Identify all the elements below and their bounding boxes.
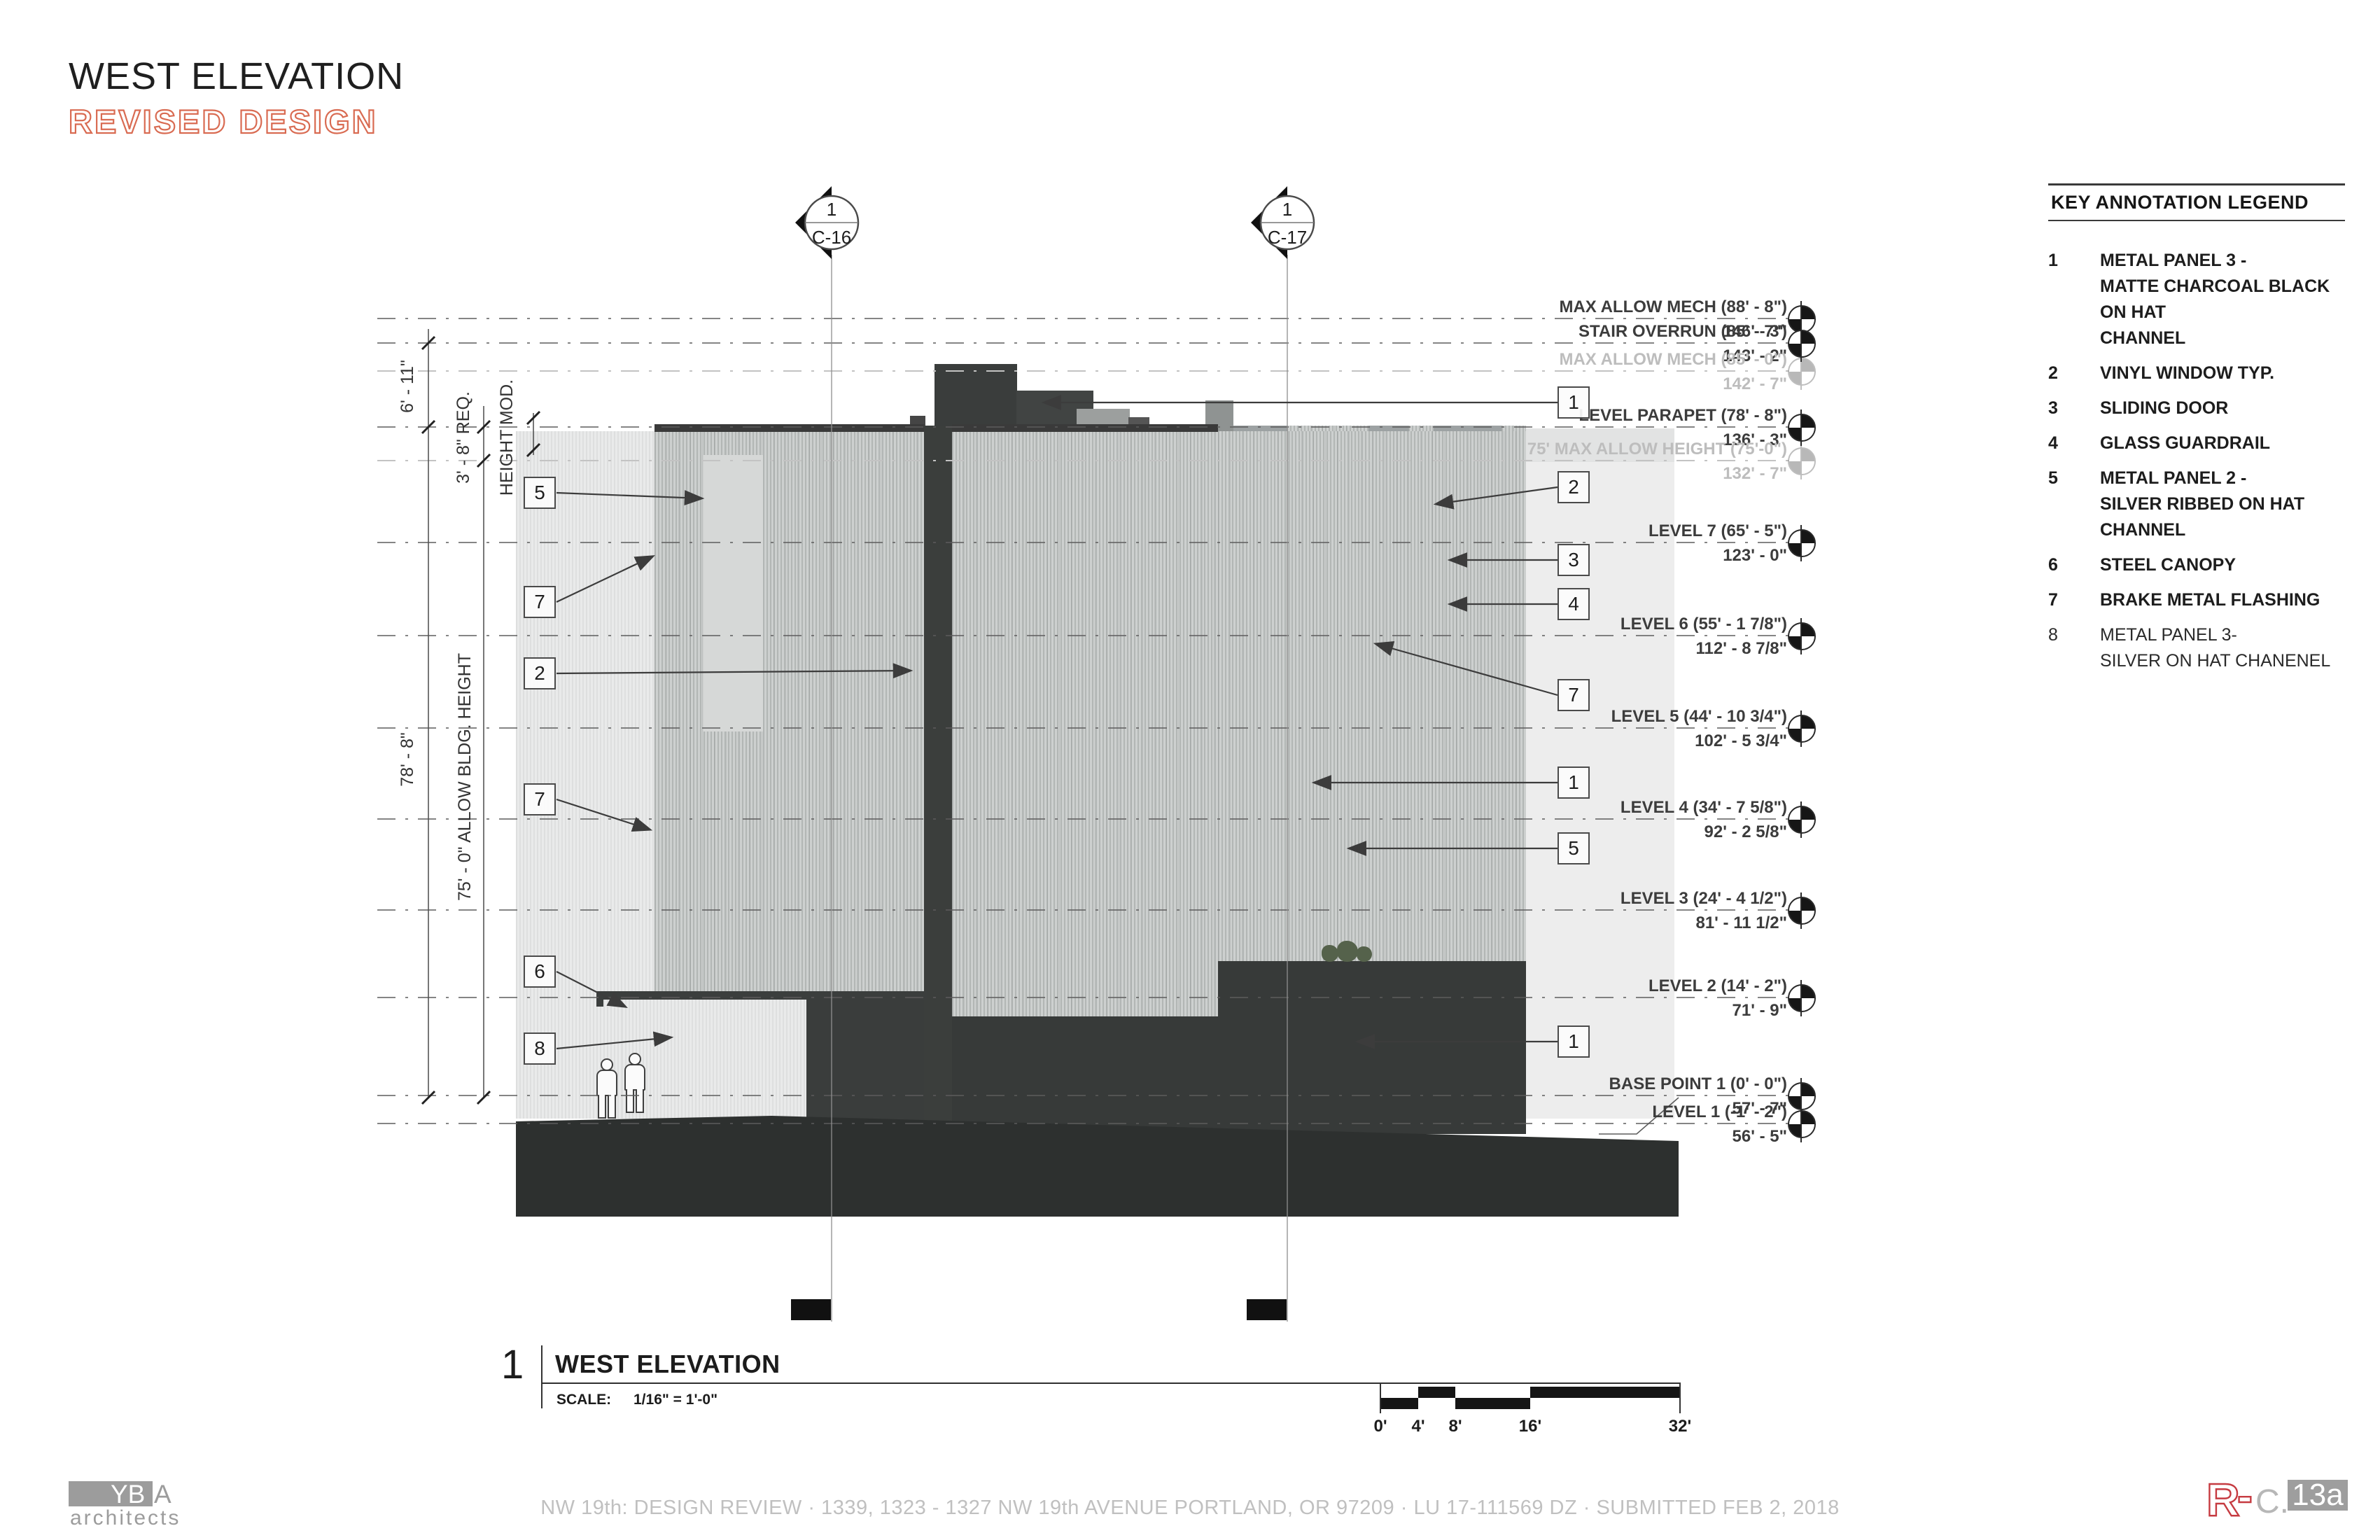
dimension-text: 78' - 8" xyxy=(397,654,418,864)
level-label: LEVEL 3 (24' - 4 1/2")81' - 11 1/2" xyxy=(1479,888,1787,934)
sheet-number: 13a xyxy=(2292,1478,2343,1513)
level-datum-crosshair xyxy=(1800,801,1802,838)
level-label-name: LEVEL 5 (44' - 10 3/4") xyxy=(1479,706,1787,727)
level-label-name: LEVEL 4 (34' - 7 5/8") xyxy=(1479,797,1787,818)
scale-bar-label: 4' xyxy=(1411,1417,1424,1436)
level-datum-crosshair xyxy=(1800,980,1802,1016)
scale-bar-segment xyxy=(1418,1387,1455,1398)
level-label-elevation: 102' - 5 3/4" xyxy=(1479,730,1787,752)
level-label-elevation: 71' - 9" xyxy=(1479,1000,1787,1021)
key-annotation-legend: KEY ANNOTATION LEGEND 1METAL PANEL 3 -MA… xyxy=(2048,183,2345,683)
level-datum-icon xyxy=(1788,806,1816,834)
level-datum-icon xyxy=(1788,447,1816,475)
level-label-name: MAX ALLOW MECH (88' - 8") xyxy=(1479,296,1787,318)
section-marker-diamond xyxy=(1251,186,1287,259)
drawing-title-rule xyxy=(541,1382,1680,1384)
steel-canopy-edge xyxy=(596,991,603,1007)
person-figure xyxy=(596,1058,617,1119)
shrub xyxy=(1322,945,1338,962)
scale-bar-segment xyxy=(1380,1398,1418,1409)
stair-shaft-strip xyxy=(924,426,952,1134)
level-label: LEVEL 7 (65' - 5")123' - 0" xyxy=(1479,520,1787,566)
section-marker-diamond xyxy=(795,186,832,259)
legend-item-text: VINYL WINDOW TYP. xyxy=(2100,360,2345,386)
scale-bar-segment xyxy=(1530,1387,1680,1398)
level-datum-icon xyxy=(1788,305,1816,333)
level-datum-crosshair xyxy=(1800,710,1802,747)
legend-item-line: METAL PANEL 3- xyxy=(2100,622,2345,648)
level-label-name: LEVEL 1 (-1' - 2") xyxy=(1479,1101,1787,1123)
callout-box: 2 xyxy=(524,657,556,689)
callout-box: 5 xyxy=(524,477,556,509)
level-datum-crosshair xyxy=(1800,409,1802,446)
legend-item-line: SILVER RIBBED ON HAT CHANNEL xyxy=(2100,491,2345,543)
callout-box: 8 xyxy=(524,1032,556,1065)
level-label: LEVEL 6 (55' - 1 7/8")112' - 8 7/8" xyxy=(1479,613,1787,659)
level-label-name: LEVEL 3 (24' - 4 1/2") xyxy=(1479,888,1787,909)
legend-item-number: 8 xyxy=(2048,622,2100,674)
callout-box: 7 xyxy=(1557,679,1590,711)
scale-value: 1/16" = 1'-0" xyxy=(633,1392,717,1408)
page-subtitle: REVISED DESIGN xyxy=(69,102,378,141)
ground-floor-dark-mass-center xyxy=(952,1016,1218,1134)
level-datum-icon xyxy=(1788,358,1816,386)
drawing-number: 1 xyxy=(501,1341,524,1388)
level-label-elevation: 81' - 11 1/2" xyxy=(1479,912,1787,934)
person-torso xyxy=(624,1064,645,1091)
legend-item: 3SLIDING DOOR xyxy=(2048,395,2345,421)
scale-bar-end-tick xyxy=(1380,1382,1381,1413)
level-label-elevation: 123' - 0" xyxy=(1479,545,1787,566)
legend-item-line: STEEL CANOPY xyxy=(2100,552,2345,578)
legend-item-line: GLASS GUARDRAIL xyxy=(2100,430,2345,456)
level-label-name: LEVEL 2 (14' - 2") xyxy=(1479,975,1787,997)
legend-item-text: METAL PANEL 3 -MATTE CHARCOAL BLACK ON H… xyxy=(2100,248,2345,351)
page-title: WEST ELEVATION xyxy=(69,55,404,98)
legend-item-line: MATTE CHARCOAL BLACK ON HAT xyxy=(2100,274,2345,325)
callout-box: 3 xyxy=(1557,544,1590,576)
level-label-name: MAX ALLOW MECH (85' - 0") xyxy=(1479,349,1787,370)
level-datum-crosshair xyxy=(1800,525,1802,561)
level-datum-icon xyxy=(1788,715,1816,743)
scale-bar-label: 32' xyxy=(1669,1417,1691,1436)
left-facade-smooth-panel xyxy=(703,455,763,731)
yba-logo-yb: YB xyxy=(111,1480,145,1509)
center-parapet-coping xyxy=(952,424,1218,432)
section-marker-sheet: C-17 xyxy=(1268,227,1307,248)
legend-item: 5METAL PANEL 2 -SILVER RIBBED ON HAT CHA… xyxy=(2048,465,2345,543)
callout-box: 7 xyxy=(524,586,556,618)
level-datum-crosshair xyxy=(1800,353,1802,390)
dimension-text: HEIGHT MOD. xyxy=(496,318,517,556)
steel-canopy xyxy=(596,991,927,1000)
level-datum-crosshair xyxy=(1800,892,1802,929)
legend-item-text: SLIDING DOOR xyxy=(2100,395,2345,421)
drawing-title: WEST ELEVATION xyxy=(555,1350,780,1379)
legend-item-line: BRAKE METAL FLASHING xyxy=(2100,587,2345,613)
level-label-name: 75' MAX ALLOW HEIGHT (75'-0") xyxy=(1479,438,1787,460)
level-datum-icon xyxy=(1788,897,1816,925)
footer-project-line: NW 19th: DESIGN REVIEW · 1339, 1323 - 13… xyxy=(0,1497,2380,1520)
scale-bar-label: 0' xyxy=(1373,1417,1387,1436)
level-datum-crosshair xyxy=(1800,1106,1802,1142)
callout-box: 1 xyxy=(1557,1025,1590,1058)
legend-item-text: METAL PANEL 3-SILVER ON HAT CHANENEL xyxy=(2100,622,2345,674)
center-facade-block xyxy=(952,431,1218,1016)
shrub xyxy=(1337,941,1358,962)
level-label: 75' MAX ALLOW HEIGHT (75'-0")132' - 7" xyxy=(1479,438,1787,484)
sheet-prefix: R xyxy=(2206,1473,2240,1526)
legend-item-text: BRAKE METAL FLASHING xyxy=(2100,587,2345,613)
sheet-dash: - xyxy=(2237,1469,2253,1522)
level-datum-icon xyxy=(1788,529,1816,557)
legend-title: KEY ANNOTATION LEGEND xyxy=(2051,192,2345,213)
level-datum-icon xyxy=(1788,984,1816,1012)
legend-item: 6STEEL CANOPY xyxy=(2048,552,2345,578)
callout-box: 7 xyxy=(524,783,556,815)
legend-item: 1METAL PANEL 3 -MATTE CHARCOAL BLACK ON … xyxy=(2048,248,2345,351)
left-facade-block xyxy=(654,431,924,997)
scale-bar-label: 8' xyxy=(1448,1417,1462,1436)
level-label: LEVEL 2 (14' - 2")71' - 9" xyxy=(1479,975,1787,1021)
legend-item-text: METAL PANEL 2 -SILVER RIBBED ON HAT CHAN… xyxy=(2100,465,2345,543)
legend-item-number: 1 xyxy=(2048,248,2100,351)
rooftop-mass xyxy=(934,364,1017,431)
legend-item: 7BRAKE METAL FLASHING xyxy=(2048,587,2345,613)
callout-box: 5 xyxy=(1557,832,1590,864)
level-label-elevation: 132' - 7" xyxy=(1479,463,1787,484)
section-marker-number: 1 xyxy=(1282,199,1292,220)
legend-item-text: GLASS GUARDRAIL xyxy=(2100,430,2345,456)
person-legs xyxy=(596,1095,617,1119)
lower-silver-panel xyxy=(622,1000,806,1119)
level-label-name: LEVEL 7 (65' - 5") xyxy=(1479,520,1787,542)
yba-logo-sub: architects xyxy=(70,1506,181,1530)
legend-item: 2VINYL WINDOW TYP. xyxy=(2048,360,2345,386)
level-datum-icon xyxy=(1788,1082,1816,1110)
legend-items: 1METAL PANEL 3 -MATTE CHARCOAL BLACK ON … xyxy=(2048,248,2345,674)
level-datum-icon xyxy=(1788,330,1816,358)
section-cut-line xyxy=(831,255,832,1322)
sheet-series: C. xyxy=(2255,1483,2289,1521)
legend-item-number: 6 xyxy=(2048,552,2100,578)
level-label-elevation: 92' - 2 5/8" xyxy=(1479,821,1787,843)
legend-item-number: 3 xyxy=(2048,395,2100,421)
level-label-name: LEVEL 6 (55' - 1 7/8") xyxy=(1479,613,1787,635)
level-label-elevation: 56' - 5" xyxy=(1479,1126,1787,1147)
section-marker-number: 1 xyxy=(827,199,836,220)
dimension-tick xyxy=(527,412,540,424)
section-marker-sheet: C-16 xyxy=(812,227,851,248)
legend-item-line: SILVER ON HAT CHANENEL xyxy=(2100,648,2345,674)
legend-item-line: VINYL WINDOW TYP. xyxy=(2100,360,2345,386)
yba-logo-a: A xyxy=(154,1480,171,1509)
level-label: LEVEL 5 (44' - 10 3/4")102' - 5 3/4" xyxy=(1479,706,1787,752)
legend-item: 8METAL PANEL 3-SILVER ON HAT CHANENEL xyxy=(2048,622,2345,674)
legend-rule-top xyxy=(2048,183,2345,185)
callout-box: 1 xyxy=(1557,386,1590,419)
person-legs xyxy=(624,1089,645,1113)
level-label: LEVEL 4 (34' - 7 5/8")92' - 2 5/8" xyxy=(1479,797,1787,843)
callout-box: 2 xyxy=(1557,471,1590,503)
section-marker-circle xyxy=(805,196,858,249)
level-datum-crosshair xyxy=(1800,443,1802,479)
level-label: MAX ALLOW MECH (85' - 0")142' - 7" xyxy=(1479,349,1787,395)
callout-box: 1 xyxy=(1557,766,1590,799)
level-label-name: LEVEL PARAPET (78' - 8") xyxy=(1479,405,1787,426)
legend-item-number: 7 xyxy=(2048,587,2100,613)
drawing-title-divider xyxy=(541,1345,542,1408)
dimension-text: 6' - 11" xyxy=(397,281,418,491)
callout-box: 6 xyxy=(524,955,556,988)
drawing-sheet: WEST ELEVATION REVISED DESIGN KEY ANNOTA… xyxy=(0,0,2380,1540)
legend-item: 4GLASS GUARDRAIL xyxy=(2048,430,2345,456)
dimension-text: 75' - 0" ALLOW BLDG. HEIGHT xyxy=(454,553,475,1001)
level-datum-crosshair xyxy=(1800,618,1802,654)
dimension-tick xyxy=(422,1091,435,1104)
dimension-text: 3' - 8" REQ. xyxy=(453,318,474,556)
right-facade-block xyxy=(1218,431,1526,961)
scale-bar-end-tick xyxy=(1679,1382,1681,1413)
level-label-name: BASE POINT 1 (0' - 0") xyxy=(1479,1073,1787,1095)
scale-label: SCALE: xyxy=(556,1392,611,1408)
person-torso xyxy=(596,1070,617,1096)
legend-rule-bottom xyxy=(2048,220,2345,221)
section-cut-end-bar xyxy=(791,1299,831,1320)
section-marker-circle xyxy=(1261,196,1314,249)
level-label-elevation: 112' - 8 7/8" xyxy=(1479,638,1787,659)
level-label-name: STAIR OVERRUN (85' - 7") xyxy=(1479,321,1787,342)
legend-item-line: METAL PANEL 2 - xyxy=(2100,465,2345,491)
legend-item-line: CHANNEL xyxy=(2100,325,2345,351)
section-cut-line xyxy=(1287,255,1288,1322)
level-datum-icon xyxy=(1788,1110,1816,1138)
level-label-elevation: 142' - 7" xyxy=(1479,373,1787,395)
person-figure xyxy=(624,1053,645,1113)
level-datum-icon xyxy=(1788,622,1816,650)
level-label: LEVEL 1 (-1' - 2")56' - 5" xyxy=(1479,1101,1787,1147)
legend-item-number: 2 xyxy=(2048,360,2100,386)
section-cut-end-bar xyxy=(1247,1299,1287,1320)
sheet-number-box: 13a xyxy=(2288,1480,2348,1511)
level-datum-icon xyxy=(1788,414,1816,442)
callout-box: 4 xyxy=(1557,588,1590,620)
legend-item-text: STEEL CANOPY xyxy=(2100,552,2345,578)
left-parapet-coping xyxy=(654,424,924,432)
dimension-tick xyxy=(477,1091,490,1104)
scale-bar-segment xyxy=(1455,1398,1530,1409)
legend-item-number: 5 xyxy=(2048,465,2100,543)
legend-item-line: SLIDING DOOR xyxy=(2100,395,2345,421)
legend-item-number: 4 xyxy=(2048,430,2100,456)
scale-bar-label: 16' xyxy=(1519,1417,1541,1436)
shrub xyxy=(1357,946,1372,962)
legend-item-line: METAL PANEL 3 - xyxy=(2100,248,2345,274)
